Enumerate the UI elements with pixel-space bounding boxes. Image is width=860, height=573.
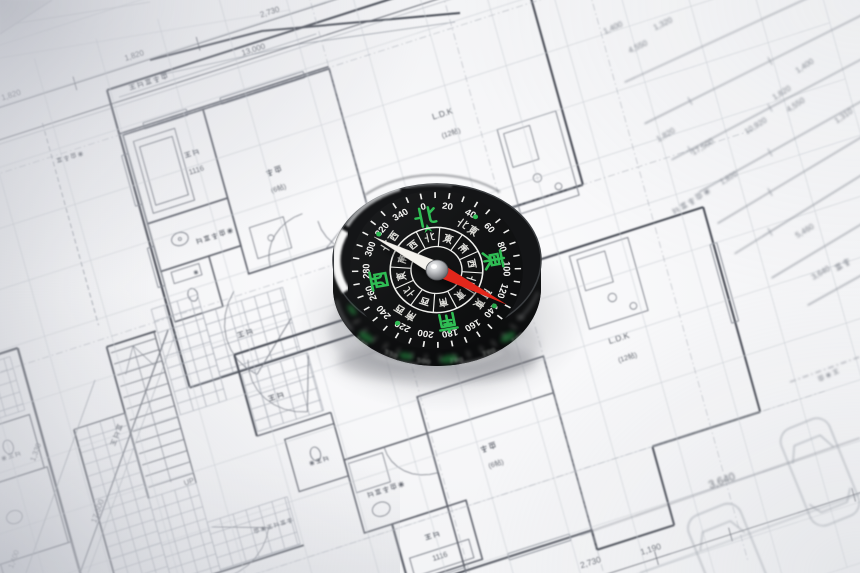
svg-text:20: 20 <box>441 200 454 212</box>
